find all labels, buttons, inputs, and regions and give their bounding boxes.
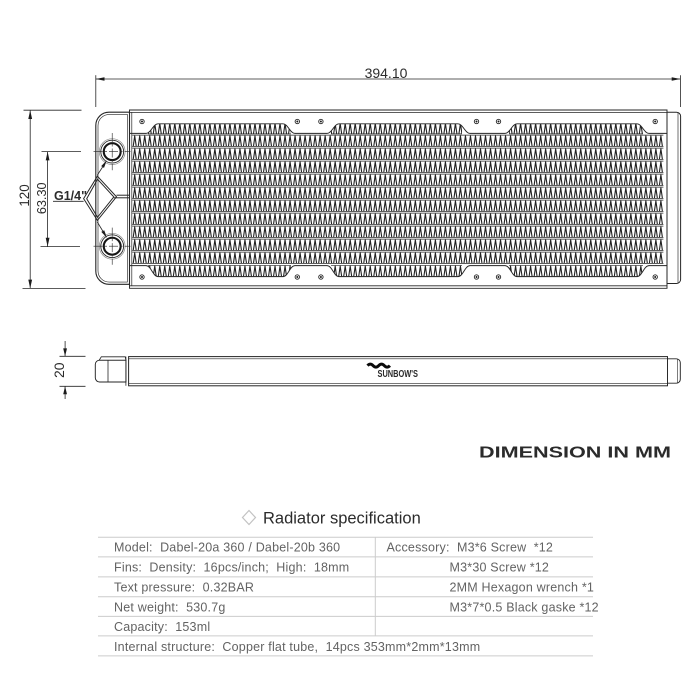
svg-text:394.10: 394.10 (365, 65, 408, 81)
svg-text:G1/4": G1/4" (54, 189, 87, 203)
svg-text:SUNBOW'S: SUNBOW'S (378, 369, 419, 380)
svg-text:20: 20 (51, 362, 67, 378)
svg-text:Internal structure: Copper fl: Internal structure: Copper flat tube, 14… (114, 640, 480, 654)
svg-text:Fins: Density: 16pcs/inch;: Fins: Density: 16pcs/inch; High: 18mm (114, 561, 349, 575)
svg-text:Accessory: M3*6 Screw *12: Accessory: M3*6 Screw *12 (387, 541, 554, 555)
svg-text:Model: Dabel-20a 360 / Dabel-: Model: Dabel-20a 360 / Dabel-20b 360 (114, 541, 340, 555)
svg-text:Net weight: 530.7g: Net weight: 530.7g (114, 600, 226, 614)
svg-text:Capacity: 153ml: Capacity: 153ml (114, 620, 210, 634)
svg-text:DIMENSION IN MM: DIMENSION IN MM (479, 445, 671, 462)
svg-text:Text pressure: 0.32BAR: Text pressure: 0.32BAR (114, 581, 254, 595)
svg-text:120: 120 (17, 184, 32, 206)
svg-text:2MM Hexagon wrench *1: 2MM Hexagon wrench *1 (450, 581, 595, 595)
svg-text:M3*30 Screw *12: M3*30 Screw *12 (450, 561, 550, 575)
svg-text:M3*7*0.5 Black gaske *12: M3*7*0.5 Black gaske *12 (450, 600, 599, 614)
svg-text:Radiator specification: Radiator specification (263, 510, 421, 528)
svg-text:63.30: 63.30 (35, 182, 49, 214)
